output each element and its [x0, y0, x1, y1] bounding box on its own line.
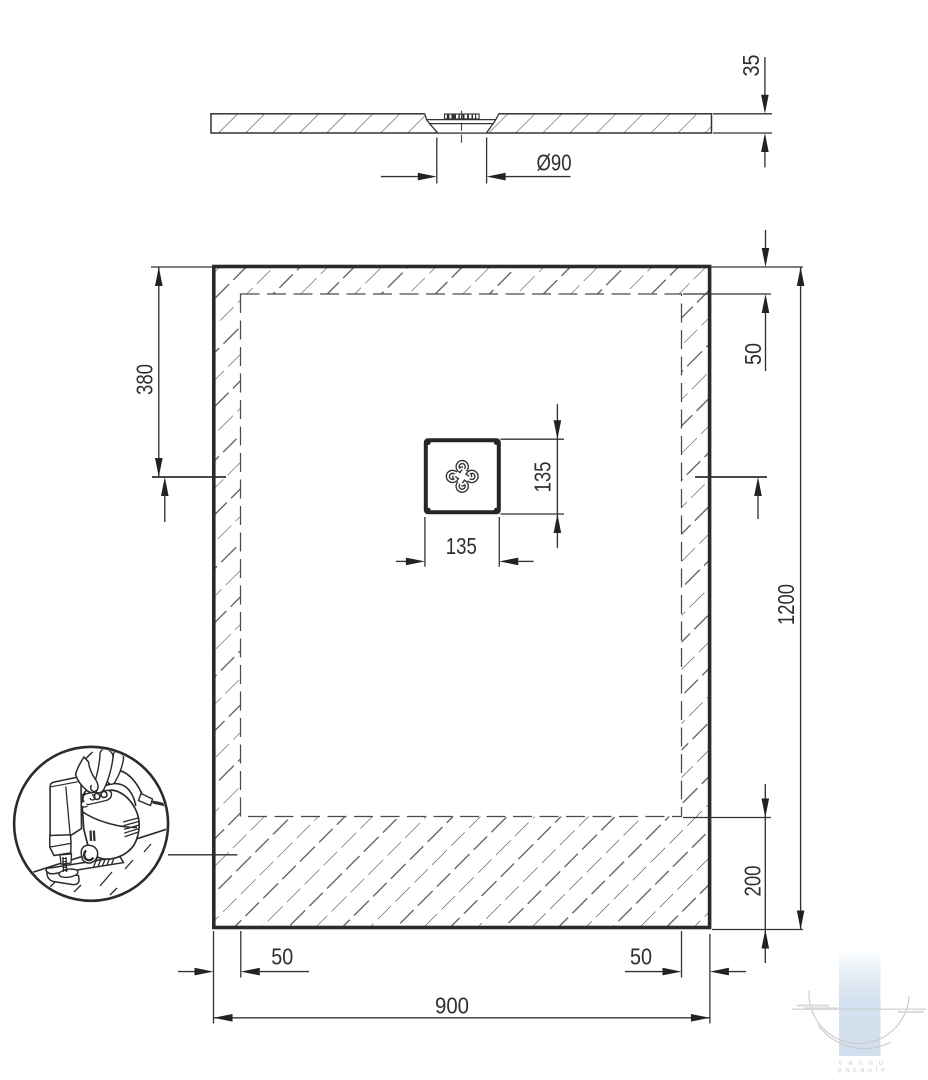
svg-text:Ø90: Ø90 — [537, 150, 572, 176]
svg-text:50: 50 — [630, 944, 652, 970]
svg-text:50: 50 — [271, 944, 293, 970]
svg-text:900: 900 — [435, 993, 469, 1019]
svg-text:135: 135 — [446, 533, 477, 559]
svg-text:380: 380 — [132, 364, 158, 395]
svg-text:1200: 1200 — [773, 584, 799, 625]
svg-text:200: 200 — [740, 866, 766, 897]
svg-text:pasaule: pasaule — [838, 1065, 889, 1074]
svg-text:35: 35 — [738, 55, 764, 77]
svg-text:135: 135 — [530, 462, 556, 493]
svg-text:50: 50 — [740, 343, 766, 365]
